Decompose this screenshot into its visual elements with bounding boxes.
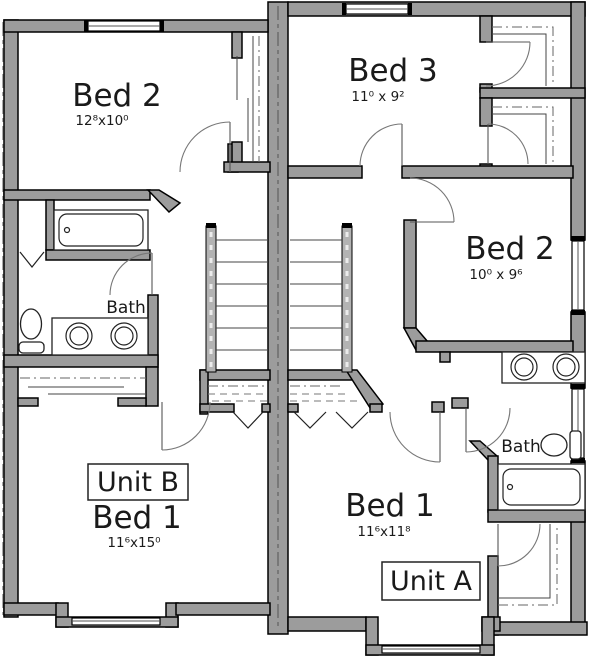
room-label-bed3-unita: Bed 3: [348, 53, 438, 89]
toilet-tank-unita: [570, 431, 581, 459]
bed3-right-wall-stub: [480, 16, 492, 42]
unit-label-unita: Unit A: [390, 566, 473, 597]
unitb-bottom-wall-left: [4, 603, 58, 615]
room-label-bath-unita: Bath: [501, 437, 541, 457]
storageb-bottom-stub1: [200, 404, 234, 412]
dims-bed1-unitb: 11⁶x15⁰: [107, 535, 160, 551]
bed2a-bottom-wall: [416, 341, 573, 352]
unit-label-unitb: Unit B: [97, 467, 179, 498]
storageb-bottom-stub2: [262, 404, 270, 412]
railing-cap: [342, 223, 352, 228]
batha-jamb-top: [440, 352, 450, 362]
window-cap: [571, 384, 585, 389]
room-label-bed1-unita: Bed 1: [345, 488, 435, 524]
batha-door-jamb: [452, 398, 468, 408]
toilet-bowl-unitb: [21, 309, 42, 339]
unita-right-wall-upper: [571, 2, 585, 240]
toilet-bowl-unita: [541, 434, 567, 456]
bed2b-closet-bottom-wall: [224, 162, 270, 172]
window-cap: [342, 3, 346, 15]
bed2a-left-wall: [404, 220, 416, 328]
bed1b-closet-stub-left: [18, 398, 38, 406]
dims-bed2-unita: 10⁰ x 9⁶: [469, 267, 522, 283]
bathtub-unitb: [54, 210, 148, 250]
toilet-base-unitb: [19, 342, 44, 353]
railing-cap: [206, 223, 216, 228]
room-label-bed2-unitb: Bed 2: [72, 78, 162, 114]
bed2b-closet-stub-top: [232, 32, 242, 58]
bed1a-door-jamb: [432, 402, 444, 412]
storagea-bottom-stub2: [370, 404, 382, 412]
floor-plan: Bed 2 12⁸x10⁰ Bed 3 11⁰ x 9² Bed 2 10⁰ x…: [0, 0, 600, 658]
bathb-bottom-wall: [4, 355, 158, 367]
dims-bed3-unita: 11⁰ x 9²: [351, 89, 404, 105]
unitb-left-wall: [4, 20, 18, 617]
window-cap: [571, 236, 585, 241]
bed1b-closet-right-wall: [146, 367, 158, 406]
floor-plan-drawing: Bed 2 12⁸x10⁰ Bed 3 11⁰ x 9² Bed 2 10⁰ x…: [0, 0, 600, 658]
storagea-bottom-stub1: [288, 404, 298, 412]
bed1b-closet-stub-right: [118, 398, 146, 406]
unita-bottom-wall-left: [288, 617, 366, 631]
window-cap: [571, 310, 585, 315]
bathb-tub-wall: [46, 250, 150, 260]
closet-divider-wall: [480, 88, 585, 98]
bed3-bottom-wall: [288, 166, 362, 178]
bed2a-top-wall: [402, 166, 573, 178]
room-label-bed1-unitb: Bed 1: [92, 500, 182, 536]
bathb-linen-divider: [46, 200, 54, 250]
tuba-left-wall: [488, 456, 498, 512]
closet2-stub-top: [480, 98, 492, 126]
window-cap: [160, 20, 164, 32]
bed2b-bottom-wall: [4, 190, 150, 200]
window-cap: [408, 3, 412, 15]
batha-closet-divider: [488, 510, 585, 522]
unitb-bottom-wall-right: [176, 603, 270, 615]
room-label-bed2-unita: Bed 2: [465, 231, 555, 267]
dims-bed2-unitb: 12⁸x10⁰: [75, 113, 128, 129]
closeta-bottom-wall: [488, 622, 587, 635]
dims-bed1-unita: 11⁶x11⁸: [357, 524, 410, 540]
room-label-bath-unitb: Bath: [106, 298, 146, 318]
bathtub-unita: [498, 464, 585, 510]
unita-top-wall: [288, 2, 585, 16]
